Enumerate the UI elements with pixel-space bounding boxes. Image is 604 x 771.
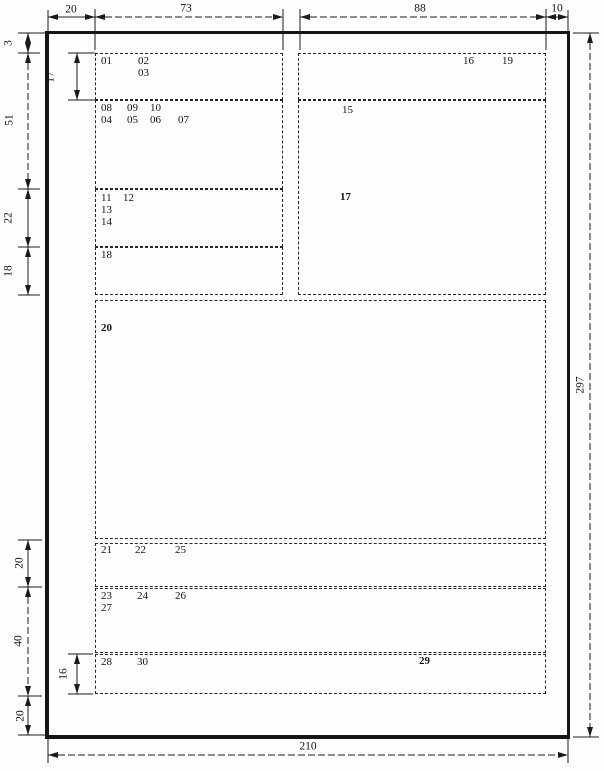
dim-inner-17: 17 (45, 71, 57, 83)
dim-top-88: 88 (414, 3, 426, 15)
form-layout-diagram: 20 73 88 10 3 17 51 22 18 20 40 16 20 29… (0, 0, 604, 771)
zone-label-19: 19 (502, 56, 513, 67)
zone-label-13: 13 (101, 205, 112, 216)
zone-label-02: 02 (138, 56, 149, 67)
dim-left-20-lower: 20 (15, 710, 27, 722)
zone-label-04: 04 (101, 115, 112, 126)
zone-label-29: 29 (419, 656, 430, 667)
zone-label-27: 27 (101, 603, 112, 614)
zone-label-12: 12 (123, 193, 134, 204)
dim-left-18: 18 (3, 265, 15, 277)
zone-label-22: 22 (135, 545, 146, 556)
dimension-lines-layer (0, 0, 604, 771)
zone-label-03: 03 (138, 68, 149, 79)
zone-label-09: 09 (127, 103, 138, 114)
dim-inner-16: 16 (58, 668, 70, 680)
dim-top-20: 20 (65, 4, 77, 16)
zone-label-18: 18 (101, 250, 112, 261)
dim-top-10: 10 (551, 3, 563, 15)
zone-label-17: 17 (340, 192, 351, 203)
zone-label-24: 24 (137, 591, 148, 602)
zone-label-20: 20 (101, 323, 112, 334)
dim-left-3: 3 (3, 40, 15, 46)
zone-label-23: 23 (101, 591, 112, 602)
dim-left-20-upper: 20 (14, 557, 26, 569)
zone-label-01: 01 (101, 56, 112, 67)
zone-label-26: 26 (175, 591, 186, 602)
dim-right-297: 297 (575, 376, 587, 393)
zone-label-16: 16 (463, 56, 474, 67)
dim-bottom-210: 210 (299, 741, 316, 753)
dim-left-22: 22 (3, 212, 15, 224)
zone-label-15: 15 (342, 105, 353, 116)
zone-label-28: 28 (101, 657, 112, 668)
zone-label-25: 25 (175, 545, 186, 556)
zone-label-30: 30 (137, 657, 148, 668)
zone-label-06: 06 (150, 115, 161, 126)
dim-left-51: 51 (4, 114, 16, 126)
zone-label-14: 14 (101, 217, 112, 228)
zone-label-10: 10 (150, 103, 161, 114)
zone-label-11: 11 (101, 193, 112, 204)
zone-label-07: 07 (178, 115, 189, 126)
dim-left-40: 40 (13, 635, 25, 647)
dim-top-73: 73 (180, 3, 192, 15)
zone-label-08: 08 (101, 103, 112, 114)
zone-label-21: 21 (101, 545, 112, 556)
zone-label-05: 05 (127, 115, 138, 126)
